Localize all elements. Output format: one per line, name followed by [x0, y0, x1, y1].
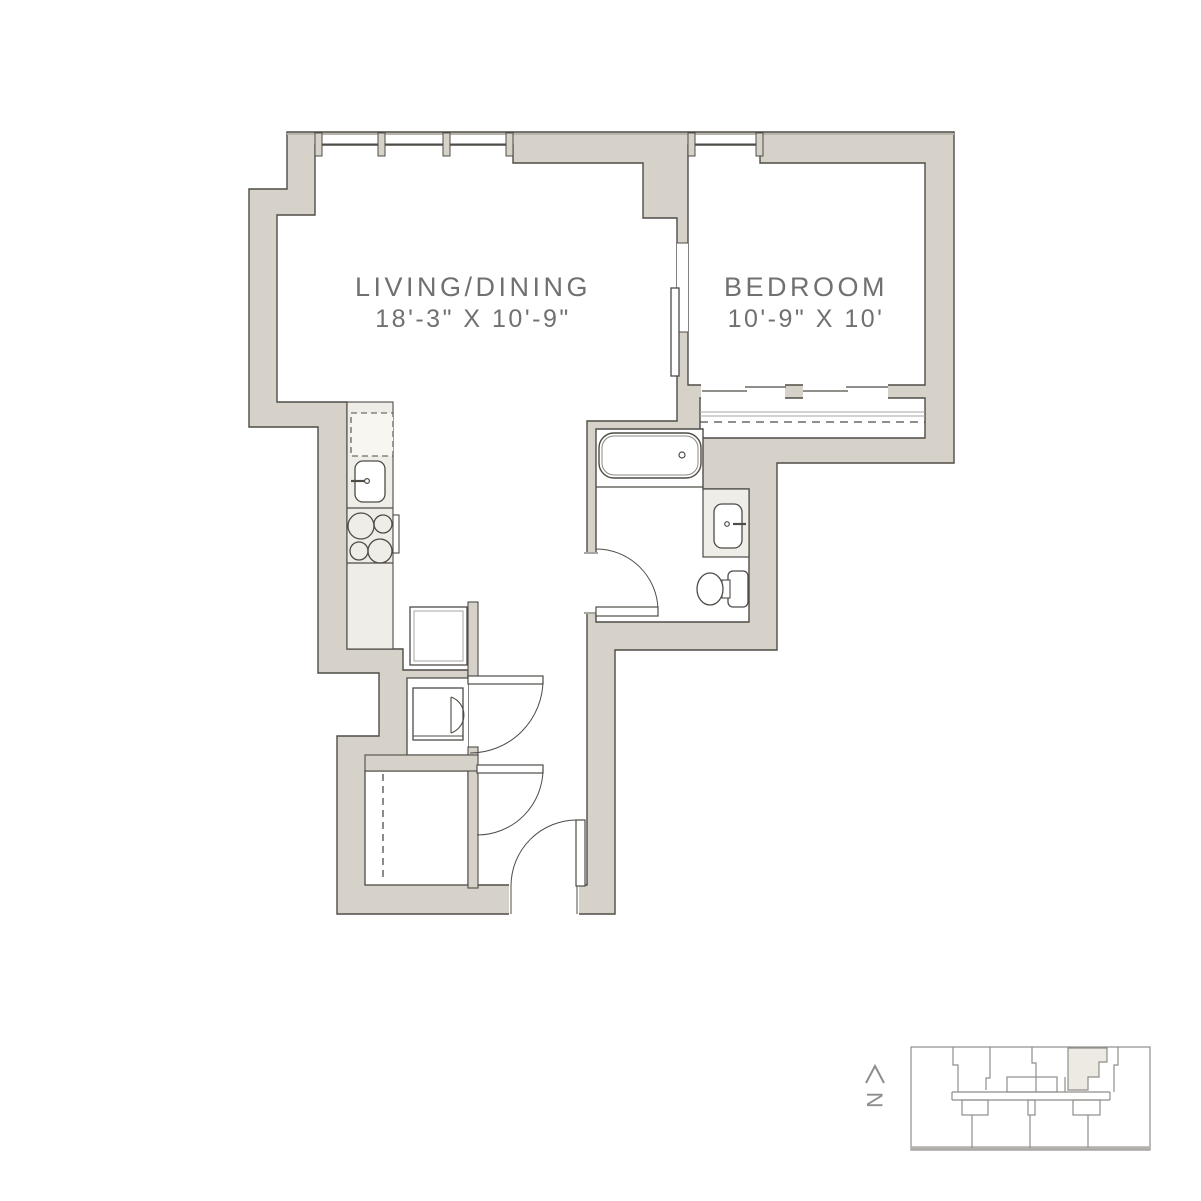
north-arrow-group: N [862, 1066, 887, 1108]
entry-door-opening [509, 884, 579, 916]
entry-door-leaf [576, 820, 585, 886]
bedroom-label: BEDROOM [724, 272, 888, 302]
north-label: N [862, 1092, 887, 1108]
wd-closet-door-leaf [468, 676, 543, 684]
bathtub-icon [599, 433, 701, 478]
key-plan [911, 1047, 1150, 1150]
living-dining-dimensions: 18'-3" X 10'-9" [375, 305, 570, 333]
kitchen-faucet-dot [365, 479, 370, 484]
bathroom-door-leaf [596, 607, 658, 616]
coat-closet [365, 771, 468, 885]
wall-closet-divider [365, 755, 478, 771]
floor-plan-page: LIVING/DINING 18'-3" X 10'-9" BEDROOM 10… [0, 0, 1201, 1201]
bath-door-opening [584, 552, 598, 614]
bedroom-closet [700, 398, 925, 438]
window-band-living [316, 134, 512, 144]
bedroom-sliding-door-icon [671, 288, 679, 376]
coat-closet-door-leaf [477, 765, 543, 773]
north-arrow-icon [866, 1066, 884, 1083]
refrigerator-icon [410, 607, 467, 665]
bedroom-dimensions: 10'-9" X 10' [728, 305, 885, 333]
wall-stub-hall [468, 602, 478, 683]
living-dining-label: LIVING/DINING [355, 272, 591, 302]
upper-cabinet-dashed-icon [351, 413, 393, 456]
room-bedroom [688, 145, 925, 385]
oven-handle-icon [393, 515, 399, 553]
washer-dryer-icon [413, 688, 463, 740]
vanity-faucet-dot [725, 522, 730, 527]
window-band-bedroom [689, 134, 756, 144]
floor-plan-drawing: LIVING/DINING 18'-3" X 10'-9" BEDROOM 10… [0, 0, 1201, 1201]
